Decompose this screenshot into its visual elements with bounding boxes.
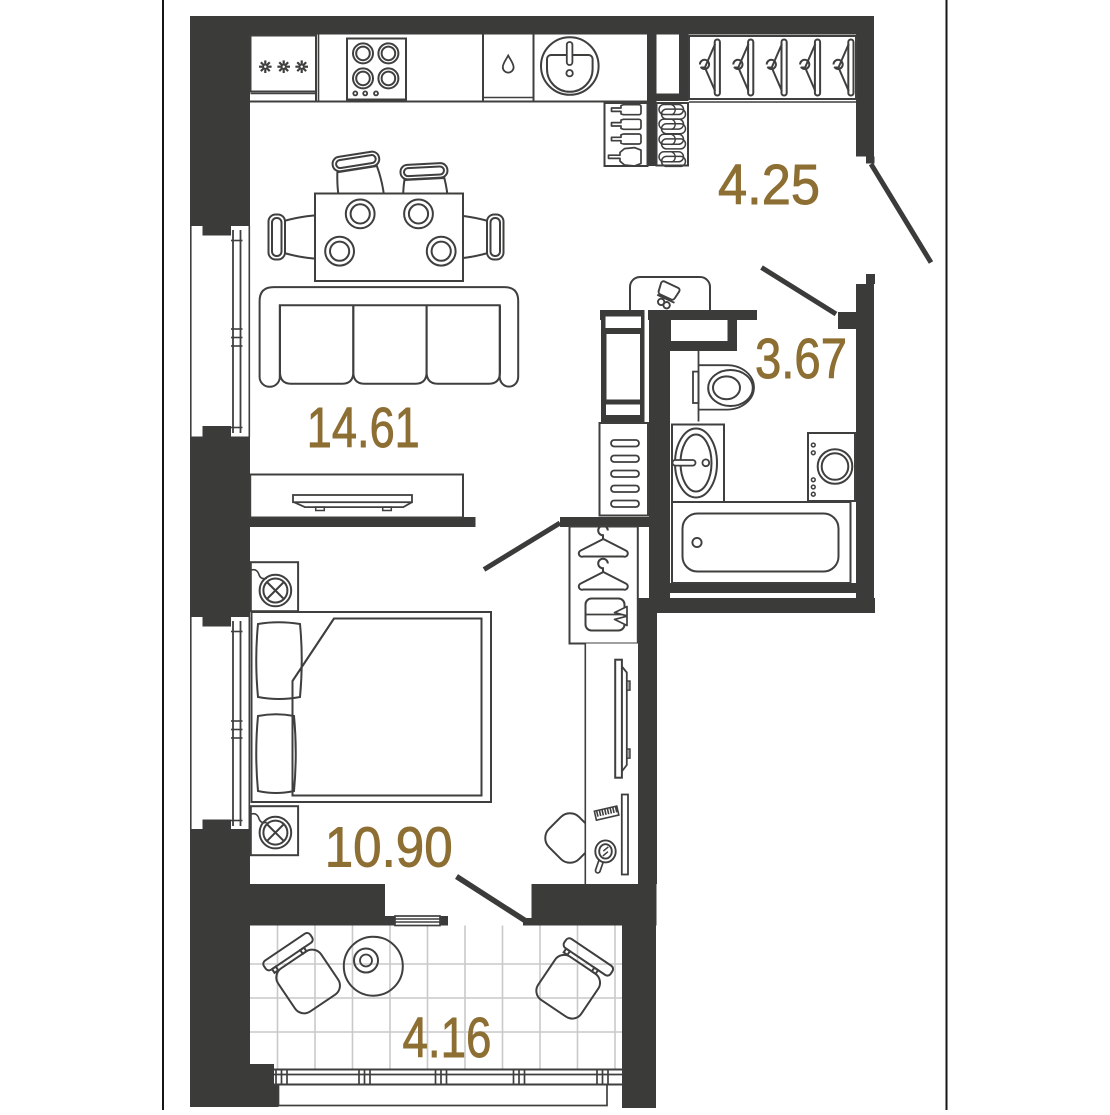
svg-text:14.61: 14.61 <box>307 396 420 460</box>
svg-text:4.25: 4.25 <box>718 153 820 217</box>
svg-text:10.90: 10.90 <box>325 815 453 879</box>
svg-text:4.16: 4.16 <box>403 1006 492 1070</box>
svg-text:3.67: 3.67 <box>755 327 847 391</box>
